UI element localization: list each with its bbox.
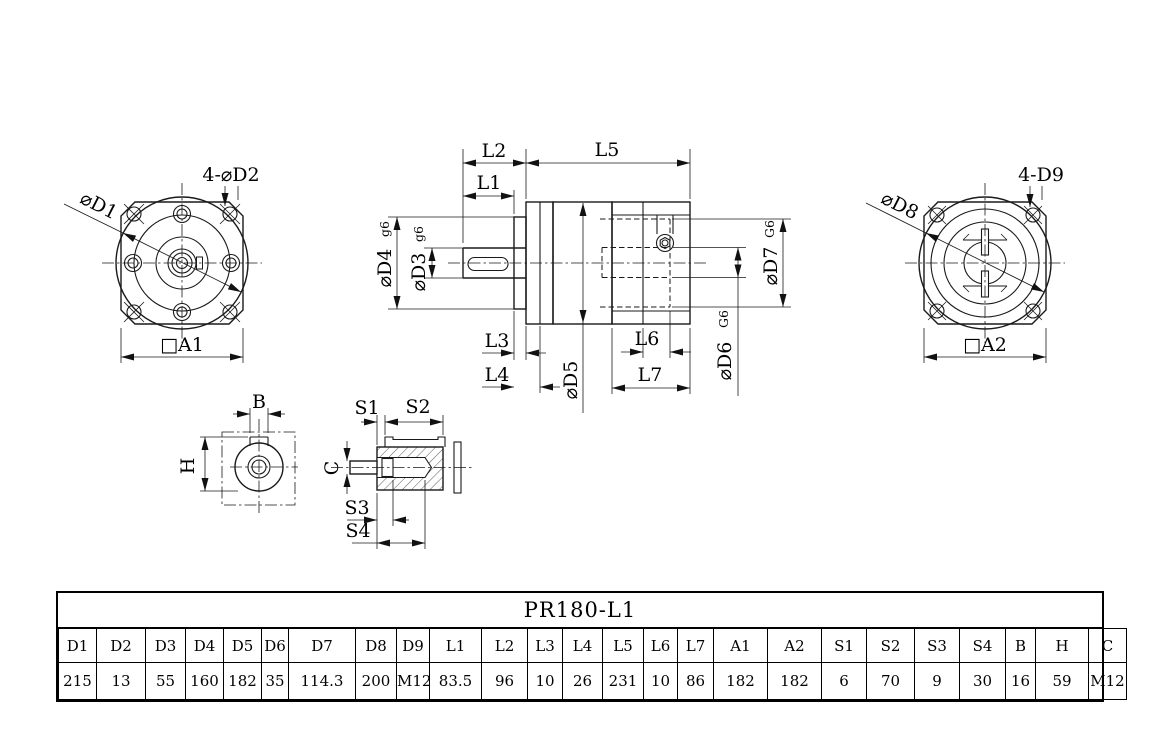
rear-dim-a2: □A2 <box>924 328 1046 363</box>
spec-value-S3: 9 <box>915 663 960 700</box>
spec-table-title: PR180-L1 <box>58 593 1102 628</box>
gearbox-drawing-page: □A1 4-⌀D2 ⌀D1 <box>0 0 1156 737</box>
dim-label-l1: L1 <box>477 172 502 194</box>
spec-value-D7: 114.3 <box>289 663 356 700</box>
dim-label-d1: ⌀D1 <box>76 187 121 224</box>
front-dim-d2: 4-⌀D2 <box>202 164 259 206</box>
spec-value-L7: 86 <box>678 663 714 700</box>
spec-header-L6: L6 <box>644 629 678 663</box>
spec-header-D3: D3 <box>146 629 186 663</box>
dim-label-c: C <box>321 461 343 476</box>
spec-header-L7: L7 <box>678 629 714 663</box>
dim-label-d5: ⌀D5 <box>560 361 582 400</box>
dim-label-d8: ⌀D8 <box>877 187 922 224</box>
dim-l6: L6 <box>621 311 691 358</box>
spec-header-L4: L4 <box>563 629 603 663</box>
spec-value-L3: 10 <box>528 663 563 700</box>
spec-value-S2: 70 <box>867 663 915 700</box>
dim-d3: ⌀D3 g6 <box>408 226 463 291</box>
spec-header-D8: D8 <box>356 629 397 663</box>
spec-header-S2: S2 <box>867 629 915 663</box>
spec-header-C: C <box>1089 629 1127 663</box>
dim-label-d4: ⌀D4 <box>374 249 396 288</box>
dim-label-d6-fit: G6 <box>716 310 731 328</box>
spec-value-L4: 26 <box>563 663 603 700</box>
rear-dim-d8: ⌀D8 <box>866 187 1044 292</box>
dim-label-h: H <box>177 458 199 475</box>
top-plate <box>385 437 445 447</box>
dim-label-l4: L4 <box>485 364 510 386</box>
spec-value-L2: 96 <box>482 663 528 700</box>
front-bolt-holes <box>125 206 240 321</box>
dim-label-l2: L2 <box>482 140 507 162</box>
engineering-drawing: □A1 4-⌀D2 ⌀D1 <box>0 0 1156 588</box>
dim-label-b: B <box>252 391 266 413</box>
dim-label-l7: L7 <box>638 364 663 386</box>
dim-s1-s2: S1 S2 <box>354 396 443 445</box>
spec-value-D8: 200 <box>356 663 397 700</box>
shaft-keyway-slot <box>468 258 508 271</box>
spec-value-D6: 35 <box>262 663 289 700</box>
spec-header-L3: L3 <box>528 629 563 663</box>
spec-value-L6: 10 <box>644 663 678 700</box>
spec-header-L1: L1 <box>430 629 482 663</box>
spec-header-D7: D7 <box>289 629 356 663</box>
clamp-screw <box>657 215 674 252</box>
spec-header-D2: D2 <box>97 629 146 663</box>
dim-label-d3: ⌀D3 <box>408 253 430 292</box>
dim-l5: L5 <box>526 139 690 199</box>
spec-header-L2: L2 <box>482 629 528 663</box>
front-view: □A1 4-⌀D2 ⌀D1 <box>64 164 262 363</box>
spec-header-D4: D4 <box>186 629 224 663</box>
spec-value-S1: 6 <box>822 663 867 700</box>
spec-value-D9: M12 <box>397 663 430 700</box>
dim-label-d3-fit: g6 <box>411 226 426 242</box>
dim-label-l5: L5 <box>595 139 620 161</box>
spec-header-B: B <box>1006 629 1036 663</box>
spec-value-A1: 182 <box>714 663 768 700</box>
front-dim-d1: ⌀D1 <box>64 187 241 292</box>
dim-label-s1: S1 <box>354 397 379 419</box>
spec-value-D4: 160 <box>186 663 224 700</box>
dim-label-s2: S2 <box>405 396 430 418</box>
shaft-detail-view: C S1 S2 S3 S4 <box>321 396 472 549</box>
spec-value-L5: 231 <box>603 663 644 700</box>
spec-header-A1: A1 <box>714 629 768 663</box>
spec-header-S1: S1 <box>822 629 867 663</box>
spec-value-row: 215135516018235114.3200M1283.59610262311… <box>59 663 1127 700</box>
spec-header-A2: A2 <box>768 629 822 663</box>
dim-label-a2: □A2 <box>963 334 1007 356</box>
spec-value-H: 59 <box>1036 663 1089 700</box>
spec-header-row: D1D2D3D4D5D6D7D8D9L1L2L3L4L5L6L7A1A2S1S2… <box>59 629 1127 663</box>
dim-c: C <box>321 441 347 494</box>
spec-header-D6: D6 <box>262 629 289 663</box>
rear-view: □A2 4-D9 ⌀D8 <box>866 164 1065 363</box>
spec-value-L1: 83.5 <box>430 663 482 700</box>
spec-header-S4: S4 <box>960 629 1006 663</box>
dim-label-l6: L6 <box>635 328 660 350</box>
key-section-view: B H <box>177 391 298 514</box>
dim-label-d2: 4-⌀D2 <box>202 164 259 186</box>
dim-label-s4: S4 <box>345 520 370 542</box>
spec-header-D9: D9 <box>397 629 430 663</box>
dim-label-s3: S3 <box>344 497 369 519</box>
dim-label-a1: □A1 <box>160 334 204 356</box>
spec-value-A2: 182 <box>768 663 822 700</box>
dim-d6: ⌀D6 G6 <box>672 248 746 397</box>
rear-dim-d9: 4-D9 <box>1018 164 1064 207</box>
dim-label-d4-fit: g6 <box>377 221 392 237</box>
spec-value-D3: 55 <box>146 663 186 700</box>
spec-value-S4: 30 <box>960 663 1006 700</box>
spec-header-H: H <box>1036 629 1089 663</box>
dim-label-d9: 4-D9 <box>1018 164 1064 186</box>
dim-label-l3: L3 <box>485 330 510 352</box>
spec-header-D5: D5 <box>224 629 262 663</box>
dim-label-d7: ⌀D7 <box>760 247 782 286</box>
dim-l3: L3 <box>482 311 546 360</box>
spec-value-B: 16 <box>1006 663 1036 700</box>
dim-label-d6: ⌀D6 <box>714 342 736 381</box>
spec-value-C: M12 <box>1089 663 1127 700</box>
spec-table-grid: D1D2D3D4D5D6D7D8D9L1L2L3L4L5L6L7A1A2S1S2… <box>58 628 1127 700</box>
spec-value-D5: 182 <box>224 663 262 700</box>
spec-table: PR180-L1 D1D2D3D4D5D6D7D8D9L1L2L3L4L5L6L… <box>56 591 1104 702</box>
front-dim-a1: □A1 <box>121 328 243 363</box>
spec-header-S3: S3 <box>915 629 960 663</box>
spec-value-D1: 215 <box>59 663 97 700</box>
dim-l1: L1 <box>463 172 514 214</box>
spec-header-L5: L5 <box>603 629 644 663</box>
dim-label-d7-fit: G6 <box>762 220 777 238</box>
side-view: L2 L5 L1 ⌀D4 g6 ⌀D3 g6 <box>374 139 791 413</box>
dim-d5: ⌀D5 <box>560 203 583 413</box>
dim-h: H <box>177 437 248 491</box>
spec-header-D1: D1 <box>59 629 97 663</box>
spec-value-D2: 13 <box>97 663 146 700</box>
